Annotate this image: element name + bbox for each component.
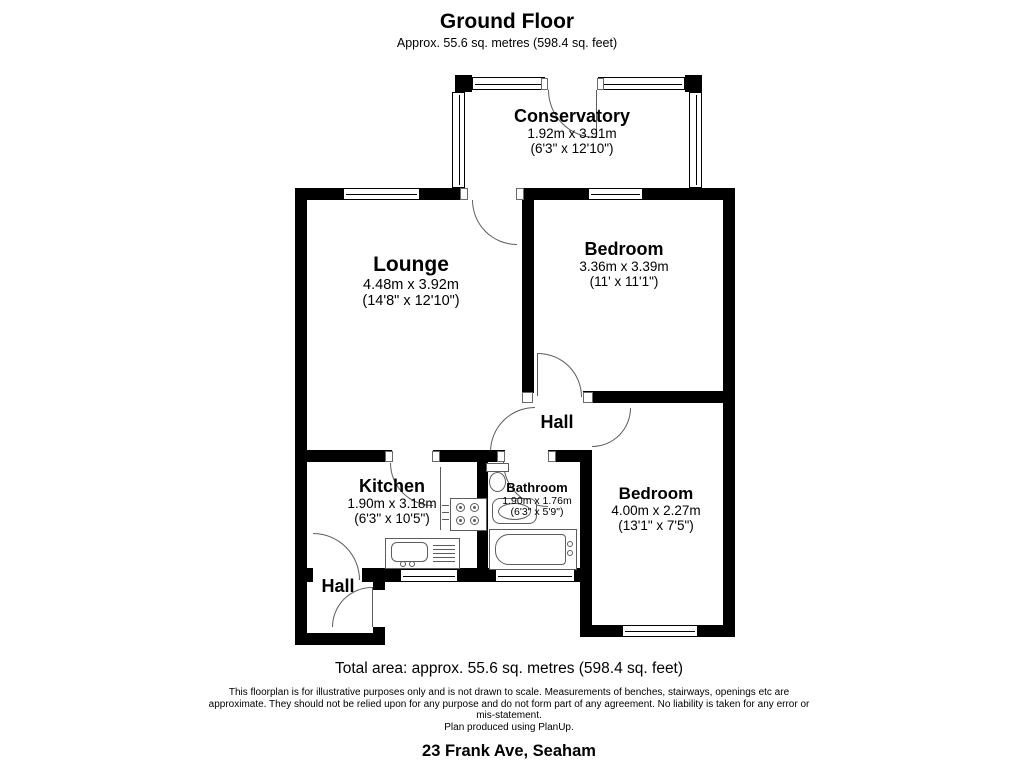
door-arc [313,533,360,580]
wall [523,188,588,200]
window [689,92,702,188]
wall [455,75,472,92]
disclaimer-line: mis-statement. [0,710,1018,722]
room-label-hall-entrance: Hall [321,576,354,596]
bathtub-inner [495,534,566,565]
wall [592,625,622,637]
wall [580,450,592,637]
room-dims-imperial: (11' x 11'1") [579,274,668,289]
sink-tap [409,561,415,567]
wall [295,188,343,200]
room-label-bedroom1: Bedroom 3.36m x 3.39m (11' x 11'1") [579,239,668,289]
window [588,188,643,200]
door-jamb [385,451,393,462]
room-label-kitchen: Kitchen 1.90m x 3.18m (6'3" x 10'5") [347,476,436,526]
room-dims-imperial: (6'3" x 12'10") [514,141,630,156]
window [343,188,420,200]
door-arc [472,200,517,245]
bath-tap [567,550,573,556]
room-dims-metric: 4.00m x 2.27m [611,503,700,518]
room-dims-imperial: (6'3" x 10'5") [347,511,436,526]
room-name: Lounge [362,253,459,277]
hob [450,498,487,531]
drainer-line [433,545,455,546]
room-dims-imperial: (13'1" x 7'5") [611,518,700,533]
room-dims-metric: 1.90m x 1.76m [502,496,571,507]
window [400,569,458,582]
door-jamb [548,451,556,462]
wall [458,568,495,582]
sink-tap [400,561,406,567]
door-jamb [583,392,593,403]
hob-burner [470,516,479,525]
wall [685,75,702,92]
drainer-line [433,561,455,562]
hob-grill-line [442,519,449,520]
door-arc [592,408,631,447]
drainer-line [433,557,455,558]
disclaimer-line: approximate. They should not be relied u… [0,699,1018,711]
wall [433,450,505,462]
room-name: Bathroom [502,481,571,496]
room-label-hall: Hall [540,412,573,432]
hob-burner [456,503,465,512]
disclaimer-text: This floorplan is for illustrative purpo… [0,687,1018,733]
door-leaf [537,353,538,396]
room-label-bedroom2: Bedroom 4.00m x 2.27m (13'1" x 7'5") [611,484,700,533]
room-label-bathroom: Bathroom 1.90m x 1.76m (6'3" x 5'9") [502,481,571,518]
wall [643,188,735,200]
wall [373,580,385,590]
wall [295,188,307,645]
door-jamb [541,78,548,90]
wall [723,188,735,637]
sink-bowl [391,542,428,562]
wall [698,625,735,637]
hob-grill-line [442,505,449,506]
floorplan-canvas: Conservatory 1.92m x 3.91m (6'3" x 12'10… [0,0,1024,768]
toilet-cistern [486,463,509,472]
bath-tap [567,541,573,547]
door-arc [490,407,535,452]
room-name: Hall [321,576,354,596]
room-dims-imperial: (14'8" x 12'10") [362,293,459,309]
room-dims-metric: 1.90m x 3.18m [347,496,436,511]
room-name: Conservatory [514,106,630,126]
door-leaf [372,587,373,627]
door-jamb [516,188,524,200]
window [598,77,685,90]
room-name: Kitchen [347,476,436,496]
counter-edge [440,467,441,530]
door-jamb [460,188,468,200]
room-label-conservatory: Conservatory 1.92m x 3.91m (6'3" x 12'10… [514,106,630,156]
room-dims-metric: 4.48m x 3.92m [362,277,459,293]
door-jamb [597,78,604,90]
room-dims-metric: 3.36m x 3.39m [579,259,668,274]
wall [295,633,385,645]
address-title: 23 Frank Ave, Seaham [0,742,1018,761]
wall [307,450,392,462]
window [495,569,575,582]
hob-burner [456,516,465,525]
drainer-line [433,553,455,554]
door-arc [538,353,582,397]
hob-burner [470,503,479,512]
room-label-lounge: Lounge 4.48m x 3.92m (14'8" x 12'10") [362,253,459,309]
hob-grill-line [442,512,449,513]
window [472,77,545,90]
room-name: Hall [540,412,573,432]
door-jamb [522,392,533,403]
door-jamb [497,451,505,462]
room-name: Bedroom [611,484,700,503]
room-name: Bedroom [579,239,668,259]
door-jamb [432,451,440,462]
total-area-text: Total area: approx. 55.6 sq. metres (598… [0,660,1018,678]
wall [522,200,534,393]
window [622,625,698,637]
drainer-line [433,549,455,550]
wall [575,568,592,582]
disclaimer-line: Plan produced using PlanUp. [0,722,1018,734]
disclaimer-line: This floorplan is for illustrative purpo… [0,687,1018,699]
window [452,92,465,188]
wall [583,391,723,403]
room-dims-imperial: (6'3" x 5'9") [502,507,571,518]
room-dims-metric: 1.92m x 3.91m [514,126,630,141]
